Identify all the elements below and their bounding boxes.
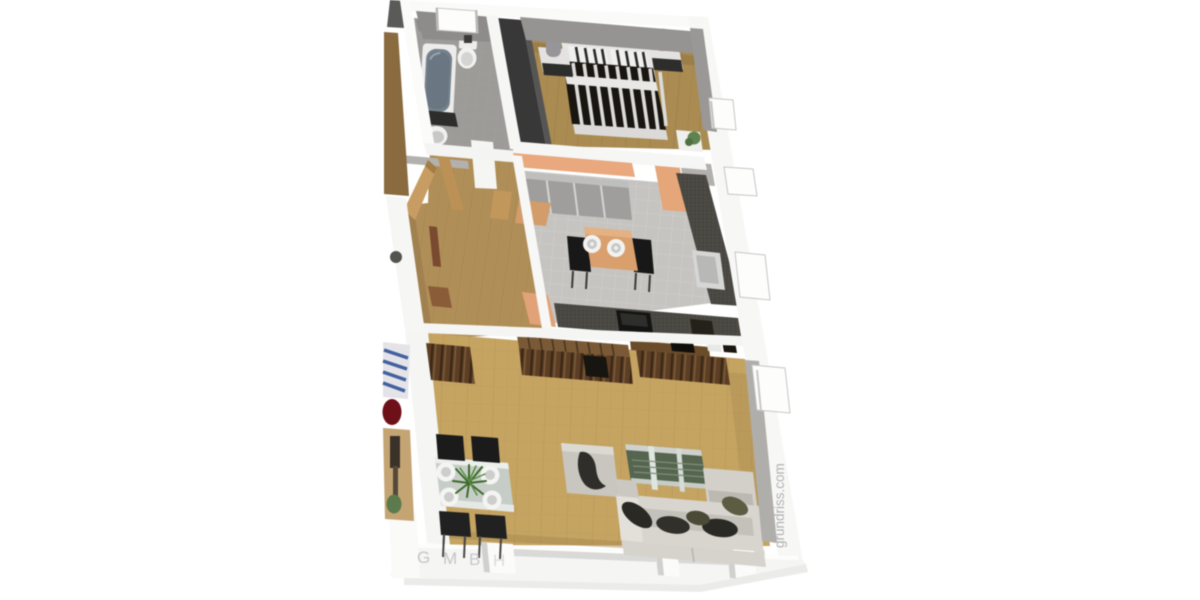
svg-text:B: B — [469, 550, 480, 569]
svg-text:G: G — [417, 548, 430, 567]
svg-text:grundriss.com: grundriss.com — [772, 463, 787, 548]
svg-text:H: H — [493, 551, 505, 570]
svg-text:M: M — [443, 549, 457, 568]
